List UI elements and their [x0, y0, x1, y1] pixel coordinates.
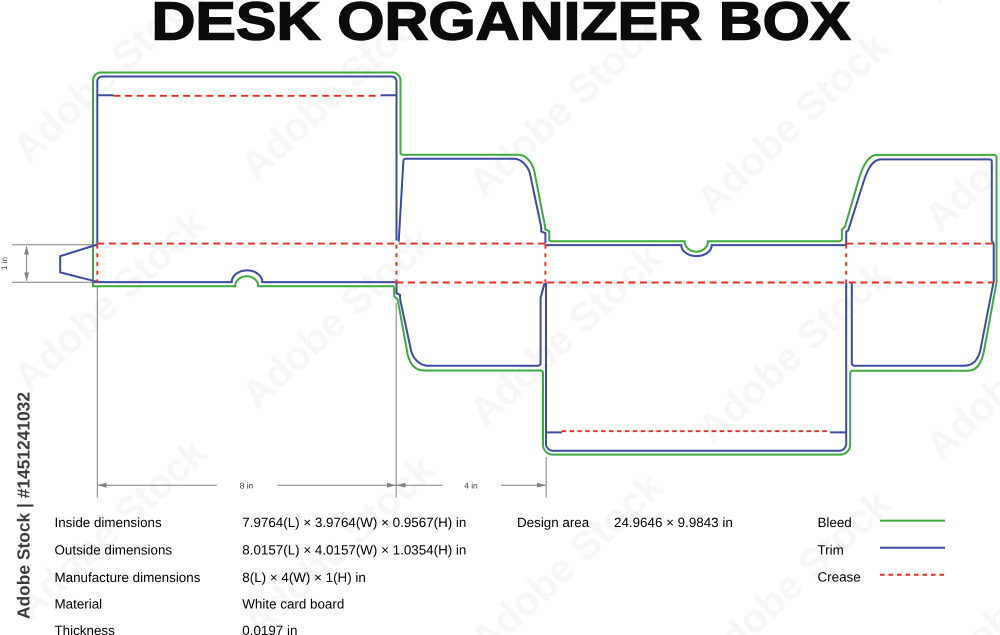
svg-text:Crease: Crease	[818, 570, 861, 585]
svg-text:Trim: Trim	[818, 543, 844, 558]
svg-text:Thickness: Thickness	[55, 623, 116, 635]
svg-text:Design area: Design area	[517, 515, 590, 530]
svg-text:4 in: 4 in	[464, 480, 478, 490]
svg-text:Outside dimensions: Outside dimensions	[55, 543, 173, 558]
svg-text:8(L) × 4(W) × 1(H) in: 8(L) × 4(W) × 1(H) in	[242, 570, 366, 585]
svg-text:Material: Material	[55, 597, 103, 612]
svg-text:8.0157(L) × 4.0157(W) × 1.0354: 8.0157(L) × 4.0157(W) × 1.0354(H) in	[242, 543, 466, 558]
svg-text:8 in: 8 in	[240, 480, 254, 490]
svg-text:DESK ORGANIZER BOX: DESK ORGANIZER BOX	[152, 0, 851, 52]
svg-text:0.0197 in: 0.0197 in	[242, 623, 297, 635]
svg-text:Bleed: Bleed	[818, 515, 852, 530]
svg-text:7.9764(L) × 3.9764(W) × 0.9567: 7.9764(L) × 3.9764(W) × 0.9567(H) in	[242, 515, 466, 530]
svg-text:Adobe Stock | #1451241032: Adobe Stock | #1451241032	[14, 392, 34, 619]
svg-text:1 in: 1 in	[0, 257, 9, 270]
svg-text:Inside dimensions: Inside dimensions	[55, 515, 162, 530]
svg-text:White card board: White card board	[242, 597, 344, 612]
svg-text:24.9646 × 9.9843 in: 24.9646 × 9.9843 in	[614, 515, 733, 530]
svg-text:Manufacture dimensions: Manufacture dimensions	[55, 570, 201, 585]
